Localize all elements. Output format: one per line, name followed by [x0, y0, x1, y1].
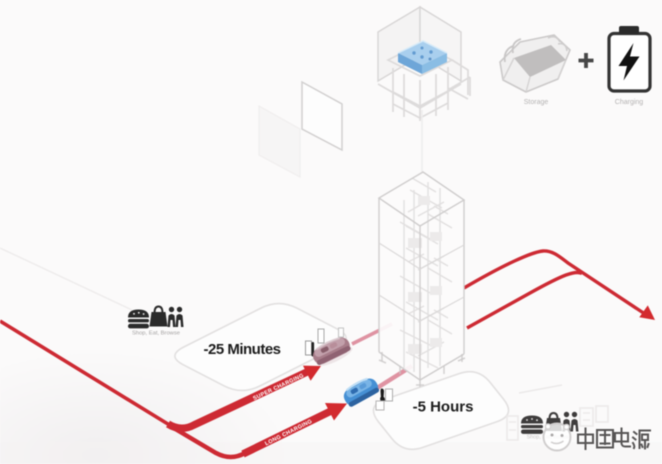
svg-text:Storage: Storage: [524, 99, 549, 106]
svg-text:-25 Minutes: -25 Minutes: [203, 341, 280, 358]
svg-text:Charging: Charging: [615, 99, 644, 106]
svg-text:-5 Hours: -5 Hours: [413, 399, 474, 416]
svg-text:Shop, Eat, Browse: Shop, Eat, Browse: [132, 331, 180, 337]
